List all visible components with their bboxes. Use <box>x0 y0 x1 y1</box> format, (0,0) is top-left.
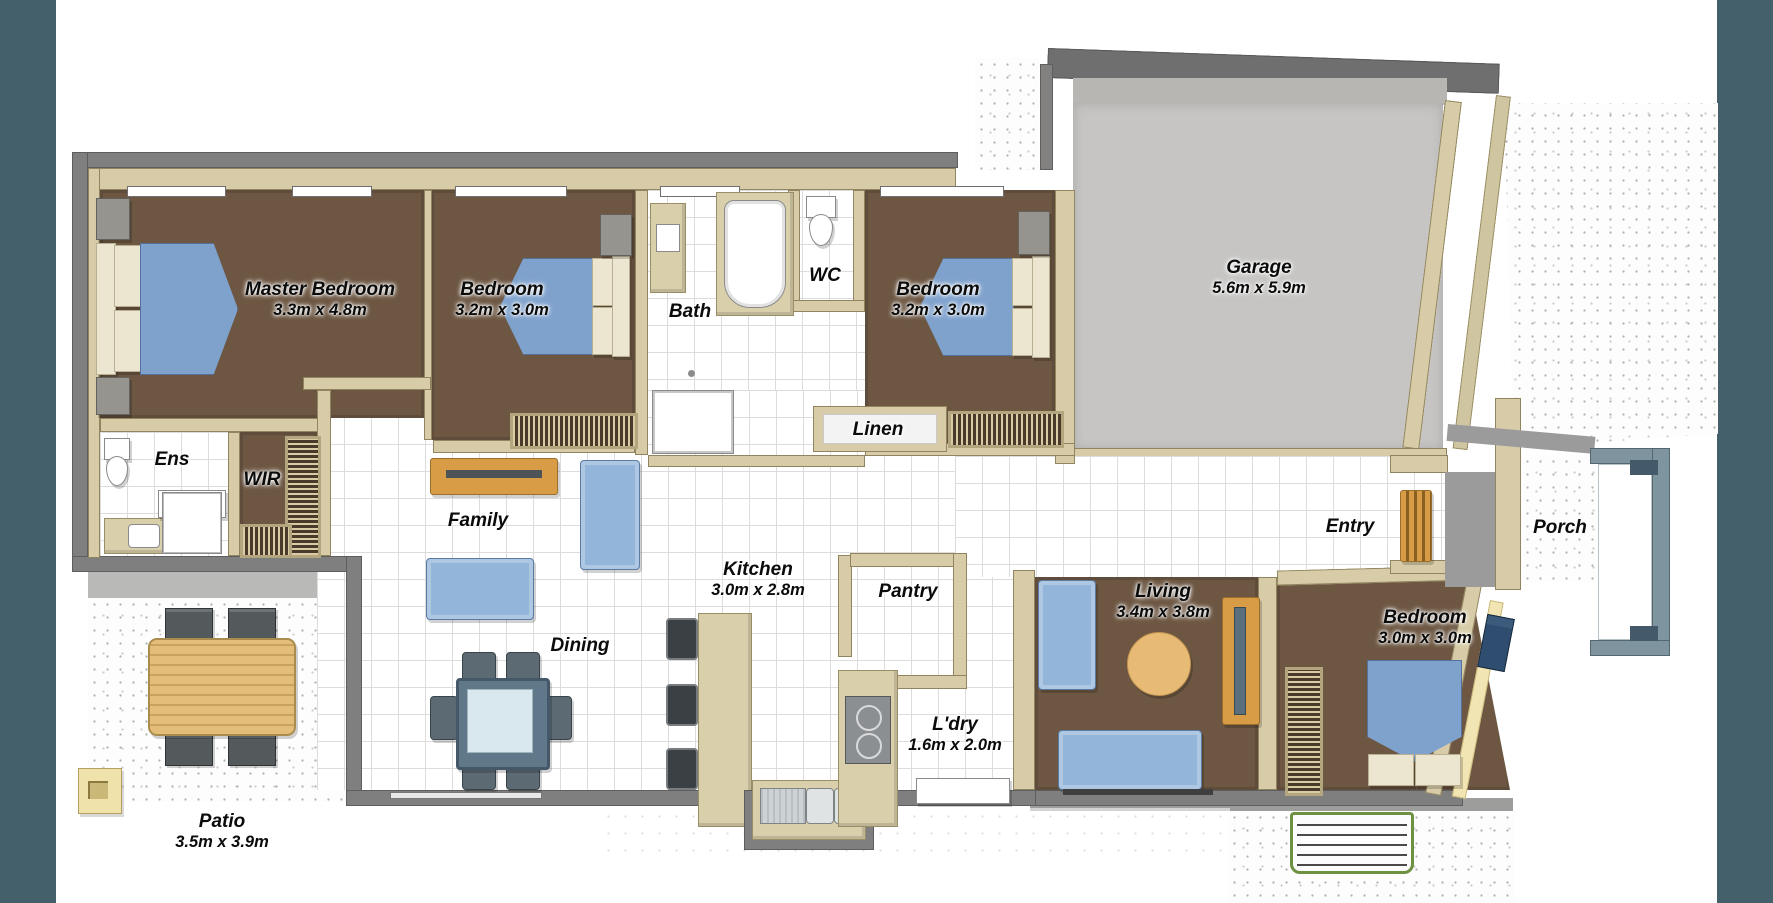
outer-wall-left <box>72 152 88 572</box>
living-ottoman <box>1127 632 1191 696</box>
entry-step-gray <box>1445 472 1497 587</box>
master-side-table-1 <box>96 198 130 240</box>
bedroom4-pillow-2 <box>1415 754 1461 786</box>
window-bedroom3 <box>880 186 1004 197</box>
cooktop <box>845 696 891 764</box>
label-patio: Patio3.5m x 3.9m <box>175 811 269 853</box>
family-sofa-vertical <box>580 460 640 570</box>
label-pantry: Pantry <box>878 581 937 603</box>
living-sofa-horizontal <box>1058 730 1202 790</box>
wall-pantry-right <box>953 553 967 689</box>
patio-chair-2 <box>228 608 276 640</box>
bathtub <box>724 200 786 308</box>
label-porch: Porch <box>1533 517 1587 539</box>
label-ensuite: Ens <box>155 449 190 471</box>
window-master2 <box>292 186 372 197</box>
bedroom2-bedhead <box>612 256 630 357</box>
kitchen-sink-drainer <box>760 788 806 824</box>
rear-steps <box>1290 812 1414 874</box>
outer-wall-ens-bottom <box>72 556 362 572</box>
label-bedroom2: Bedroom3.2m x 3.0m <box>455 279 549 321</box>
patio-chair-1 <box>165 608 213 640</box>
ensuite-basin <box>128 524 160 548</box>
side-fence <box>1453 95 1511 450</box>
label-master-bedroom: Master Bedroom3.3m x 4.8m <box>245 279 395 321</box>
bedroom2-dresser <box>600 214 632 256</box>
living-sliding-door <box>1063 789 1213 795</box>
porch-post-column <box>1495 398 1521 590</box>
paved-area-top-right <box>1500 96 1718 448</box>
outer-wall-top <box>72 152 958 168</box>
garage-side-window <box>1040 64 1053 170</box>
porch-bracket-top <box>1630 460 1658 475</box>
label-bath: Bath <box>669 301 711 323</box>
wall-pantry-left <box>838 555 852 657</box>
label-linen: Linen <box>853 419 904 441</box>
entry-door-frame-top <box>1390 455 1448 473</box>
wall-ldry-living <box>1013 570 1035 790</box>
label-garage: Garage5.6m x 5.9m <box>1212 257 1306 299</box>
label-bedroom4: Bedroom3.0m x 3.0m <box>1378 607 1472 649</box>
master-pillow-2 <box>114 310 142 372</box>
living-tv <box>1234 607 1246 715</box>
paved-patch-garage-left <box>975 58 1039 170</box>
bedroom3-wardrobe <box>948 411 1064 448</box>
wir-rack-bottom <box>240 524 292 558</box>
label-living: Living3.4m x 3.8m <box>1116 581 1210 623</box>
label-entry: Entry <box>1326 516 1375 538</box>
bedroom3-dresser <box>1018 211 1050 255</box>
label-laundry: L'dry1.6m x 2.0m <box>908 714 1002 756</box>
label-wc: WC <box>809 265 841 287</box>
wall-living-bed4 <box>1258 577 1277 790</box>
wall-bath-bottom <box>648 455 865 467</box>
wall-master-bottom <box>100 418 330 432</box>
living-sofa-vertical <box>1038 580 1096 690</box>
bath-shower <box>652 390 734 454</box>
dining-table <box>456 678 550 770</box>
rear-path <box>600 808 1230 860</box>
porch-deck <box>1598 464 1652 640</box>
window-bedroom2 <box>455 186 567 197</box>
porch-bracket-bottom <box>1630 626 1658 641</box>
bedroom4-window-shutter <box>1477 614 1515 672</box>
entry-door-frame-bottom <box>1390 560 1448 574</box>
outer-wall-patio-side <box>346 556 362 806</box>
patio-slab-edge <box>88 572 346 598</box>
bedroom2-pillow-1 <box>592 258 614 306</box>
kitchen-stool-3 <box>666 748 698 790</box>
bedroom3-pillow-2 <box>1012 308 1034 356</box>
family-sofa-horizontal <box>426 558 534 620</box>
label-family: Family <box>448 510 508 532</box>
bedroom4-wardrobe <box>1285 667 1323 796</box>
family-tv <box>446 470 542 478</box>
wall-ens-wir <box>228 432 240 556</box>
patio-chair-3 <box>165 734 213 766</box>
patio-chair-4 <box>228 734 276 766</box>
label-dining: Dining <box>550 635 609 657</box>
ensuite-shower <box>162 492 222 554</box>
floor-plan-canvas: Master Bedroom3.3m x 4.8m Bedroom3.2m x … <box>0 0 1773 903</box>
kitchen-sink-1 <box>806 788 834 824</box>
bath-basin <box>656 224 680 252</box>
label-kitchen: Kitchen3.0m x 2.8m <box>711 559 805 601</box>
master-side-table-2 <box>96 377 130 415</box>
label-bedroom3: Bedroom3.2m x 3.0m <box>891 279 985 321</box>
porch-rail-right <box>1652 448 1670 656</box>
wall-master-bottom-step <box>303 377 431 390</box>
window-master <box>127 186 226 197</box>
bedroom2-wardrobe <box>510 413 638 449</box>
entry-door <box>1400 490 1432 562</box>
bedroom4-pillow-1 <box>1368 754 1414 786</box>
label-wir: WIR <box>244 469 281 491</box>
bedroom3-bedhead <box>1032 256 1050 358</box>
left-border-bar <box>0 0 56 903</box>
wall-wc-bed3 <box>853 190 865 312</box>
garage-wall-top-inner <box>1073 78 1447 105</box>
patio-table <box>148 638 296 736</box>
master-pillow-1 <box>114 245 142 307</box>
bedroom3-pillow-1 <box>1012 258 1034 306</box>
patio-post <box>78 768 122 814</box>
dining-chair-3 <box>430 696 458 740</box>
master-bedhead <box>96 243 116 375</box>
family-window-rear <box>390 792 542 799</box>
kitchen-stool-1 <box>666 618 698 660</box>
wall-master-bed2 <box>424 190 432 440</box>
wall-wc-bottom <box>788 300 865 312</box>
wall-pantry-top <box>850 553 955 567</box>
porch-rail-bottom <box>1590 640 1670 656</box>
kitchen-stool-2 <box>666 684 698 726</box>
right-border-bar <box>1717 0 1773 903</box>
bedroom2-pillow-2 <box>592 307 614 355</box>
bath-floor-drain <box>688 370 695 377</box>
laundry-trough <box>916 778 1010 804</box>
